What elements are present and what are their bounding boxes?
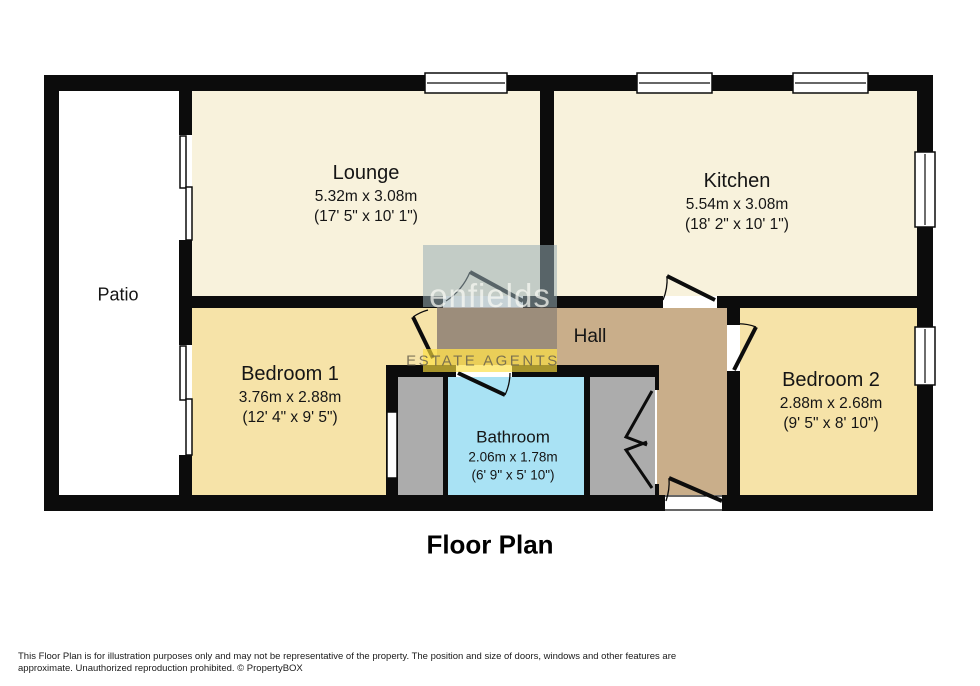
lounge-name: Lounge <box>314 160 418 187</box>
wall-outer-right <box>917 75 933 511</box>
slider-pane-lounge-1 <box>180 136 186 188</box>
wall-closet-bathroom-left <box>443 377 448 496</box>
wall-closet-hall-bottom-stub <box>655 484 659 496</box>
hall-column-area <box>657 308 727 496</box>
bathroom-metric: 2.06m x 1.78m <box>468 449 557 467</box>
door-leaf-closet-left <box>387 412 397 478</box>
patio-label: Patio <box>97 285 138 306</box>
slider-pane-bedroom1-1 <box>180 346 186 400</box>
wall-bathroom-closet-right <box>584 377 590 496</box>
slider-pane-lounge-2 <box>186 187 192 240</box>
bathroom-imperial: (6' 9" x 5' 10") <box>468 466 557 484</box>
bedroom1-imperial: (12' 4" x 9' 5") <box>239 409 342 429</box>
kitchen-name: Kitchen <box>685 168 789 195</box>
kitchen-metric: 5.54m x 3.08m <box>685 195 789 215</box>
kitchen-imperial: (18' 2" x 10' 1") <box>685 216 789 236</box>
wall-outer-bottom <box>44 495 933 511</box>
wall-closet-hall-top-stub <box>655 365 659 390</box>
wall-outer-left <box>44 75 59 511</box>
lounge-imperial: (17' 5" x 10' 1") <box>314 208 418 228</box>
wall-hall-bedroom2-stub <box>727 308 740 325</box>
wall-hall-bedroom2-lower <box>727 371 740 496</box>
bathroom-name: Bathroom <box>468 426 557 448</box>
bedroom1-name: Bedroom 1 <box>239 361 342 388</box>
bedroom1-metric: 3.76m x 2.88m <box>239 388 342 408</box>
page-title: Floor Plan <box>426 530 553 561</box>
wall-mid-horizontal-right <box>717 296 917 308</box>
disclaimer-text: This Floor Plan is for illustration purp… <box>18 651 730 676</box>
bedroom2-label: Bedroom 2 2.88m x 2.68m (9' 5" x 8' 10") <box>780 367 883 435</box>
kitchen-label: Kitchen 5.54m x 3.08m (18' 2" x 10' 1") <box>685 168 789 236</box>
slider-pane-bedroom1-2 <box>186 399 192 455</box>
lounge-label: Lounge 5.32m x 3.08m (17' 5" x 10' 1") <box>314 160 418 228</box>
hall-label: Hall <box>574 326 607 348</box>
watermark-brand: enfields <box>429 277 551 315</box>
watermark-tagline: ESTATE AGENTS <box>406 353 560 370</box>
lounge-metric: 5.32m x 3.08m <box>314 187 418 207</box>
floor-plan-drawing <box>0 0 980 686</box>
bedroom2-metric: 2.88m x 2.68m <box>780 394 883 414</box>
closet-left-area <box>398 377 443 496</box>
bedroom1-label: Bedroom 1 3.76m x 2.88m (12' 4" x 9' 5") <box>239 361 342 429</box>
wall-mid-horizontal-left <box>179 296 443 308</box>
bedroom2-imperial: (9' 5" x 8' 10") <box>780 415 883 435</box>
floor-plan-page: enfields ESTATE AGENTS Lounge 5.32m x 3.… <box>0 0 980 686</box>
bathroom-label: Bathroom 2.06m x 1.78m (6' 9" x 5' 10") <box>468 426 557 483</box>
bedroom2-name: Bedroom 2 <box>780 367 883 394</box>
